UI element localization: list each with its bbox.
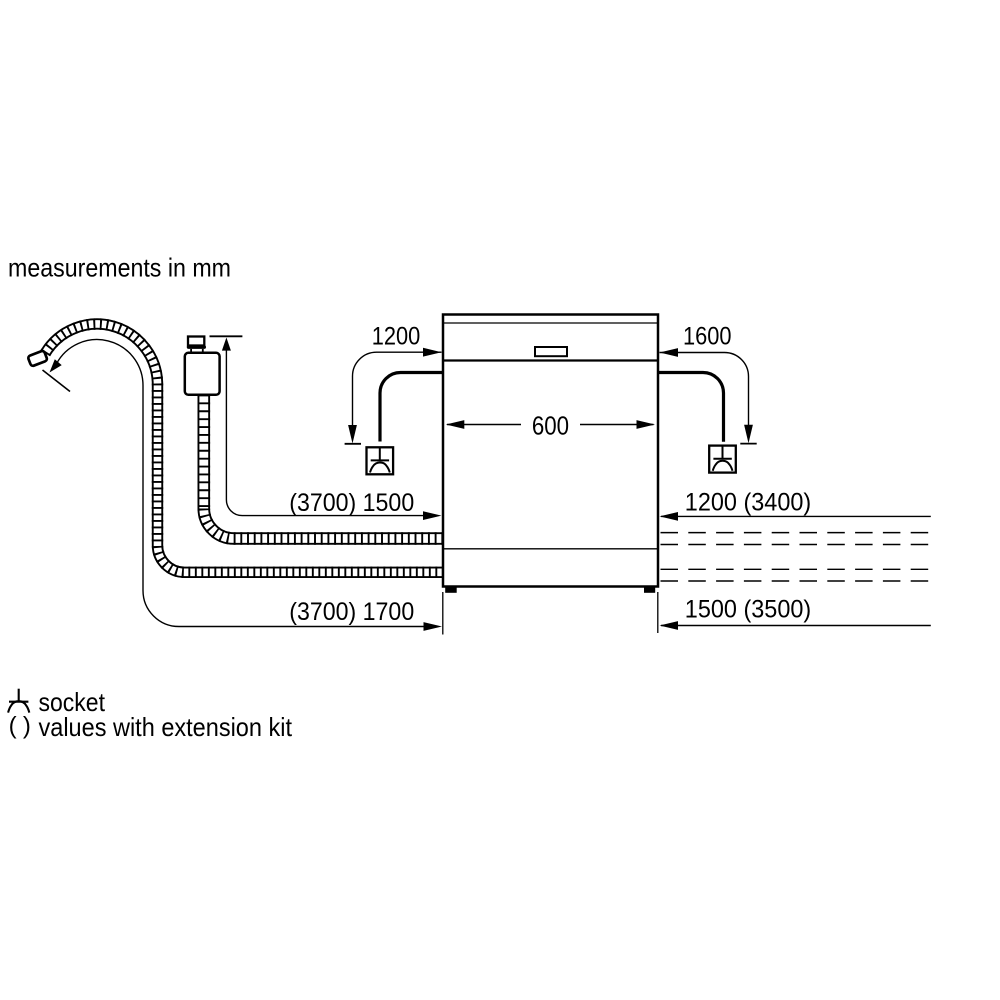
svg-text:1500 (3500): 1500 (3500)	[685, 596, 811, 624]
svg-text:1200 (3400): 1200 (3400)	[685, 489, 811, 517]
svg-text:): )	[23, 713, 31, 740]
svg-text:600: 600	[532, 411, 569, 441]
svg-text:values with extension kit: values with extension kit	[39, 712, 293, 742]
svg-text:1600: 1600	[683, 323, 732, 351]
svg-text:measurements in mm: measurements in mm	[8, 253, 231, 283]
svg-text:(3700) 1500: (3700) 1500	[289, 489, 414, 517]
svg-text:(: (	[9, 713, 17, 740]
svg-text:(3700) 1700: (3700) 1700	[289, 598, 414, 626]
svg-text:1200: 1200	[372, 323, 421, 351]
